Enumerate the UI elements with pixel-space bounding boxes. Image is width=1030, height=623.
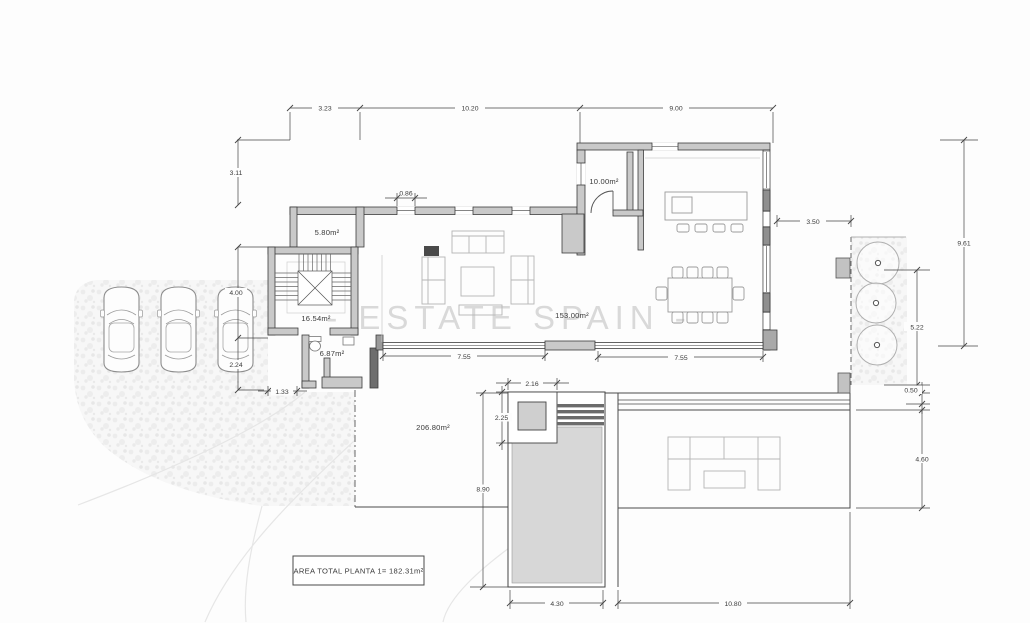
- room-stairwell-label: 16.54m²: [301, 314, 331, 323]
- dim-window-width-label: 0.86: [399, 191, 412, 198]
- room-bathroom-label: 6.87m²: [320, 349, 345, 358]
- dim-porch-width-label: 1.33: [275, 389, 288, 396]
- area-total-label: AREA TOTAL PLANTA 1= 182.31m²: [293, 567, 423, 576]
- coffee-table: [461, 267, 494, 296]
- dim-left-mid-label: 4.00: [229, 290, 242, 297]
- sofa: [452, 231, 504, 253]
- sink-icon: [343, 337, 354, 345]
- dim-right-total-label: 9.61: [957, 241, 970, 248]
- dim-pool-side-label: 8.90: [476, 487, 489, 494]
- pool-water: [512, 427, 602, 583]
- spa-tub: [518, 402, 546, 430]
- outdoor-sofa-right-arm: [758, 459, 780, 490]
- room-terrace-label: 206.80m²: [416, 423, 450, 432]
- area-total-box: AREA TOTAL PLANTA 1= 182.31m²: [293, 556, 424, 585]
- dim-top-right-label: 9.00: [669, 106, 682, 113]
- dim-pool-width-label: 4.30: [550, 601, 563, 608]
- exterior-works: [355, 237, 906, 587]
- room-living-label: 153.00m²: [555, 311, 589, 320]
- dim-right-strip-label: 5.22: [910, 325, 923, 332]
- door-swing: [591, 191, 613, 213]
- garden-post: [838, 373, 850, 393]
- tv-icon: [424, 246, 439, 256]
- outdoor-table: [704, 471, 745, 488]
- kitchen-island: [665, 192, 747, 220]
- floor-plan-drawing: - ESTATE SPAIN -: [0, 0, 1030, 623]
- dim-spa-width-label: 2.16: [525, 381, 538, 388]
- dim-left-upper-label: 3.11: [230, 170, 243, 177]
- floor-plan-page: - ESTATE SPAIN -: [0, 0, 1030, 623]
- dim-left-lower-label: 2.24: [229, 362, 242, 369]
- dim-top-left-label: 3.23: [318, 106, 331, 113]
- room-pantry-label: 10.00m²: [589, 177, 619, 186]
- garden-post: [836, 258, 850, 278]
- armchair-left: [422, 257, 445, 304]
- dim-side-gap-label: 3.50: [806, 219, 819, 226]
- island-sink: [672, 197, 692, 213]
- dim-spa-height-label: 2.25: [495, 415, 508, 422]
- dim-right-step-label: 0.50: [904, 388, 917, 395]
- outdoor-sofa-left-arm: [668, 459, 690, 490]
- bar-stools: [677, 224, 743, 232]
- dim-terrace-depth-label: 4.60: [915, 457, 928, 464]
- outdoor-lounge: [668, 437, 780, 490]
- room-storage-label: 5.80m²: [315, 228, 340, 237]
- trees-group: [856, 242, 899, 365]
- parking-cars: [101, 287, 257, 372]
- landscape-textures: [74, 237, 907, 622]
- dim-terrace-width-label: 10.80: [724, 601, 741, 608]
- dim-top-mid-label: 10.20: [461, 106, 478, 113]
- pool: [508, 392, 605, 587]
- watermark-text: - ESTATE SPAIN -: [326, 299, 692, 336]
- dim-slider-right-label: 7.55: [674, 355, 687, 362]
- dim-slider-left-label: 7.55: [457, 354, 470, 361]
